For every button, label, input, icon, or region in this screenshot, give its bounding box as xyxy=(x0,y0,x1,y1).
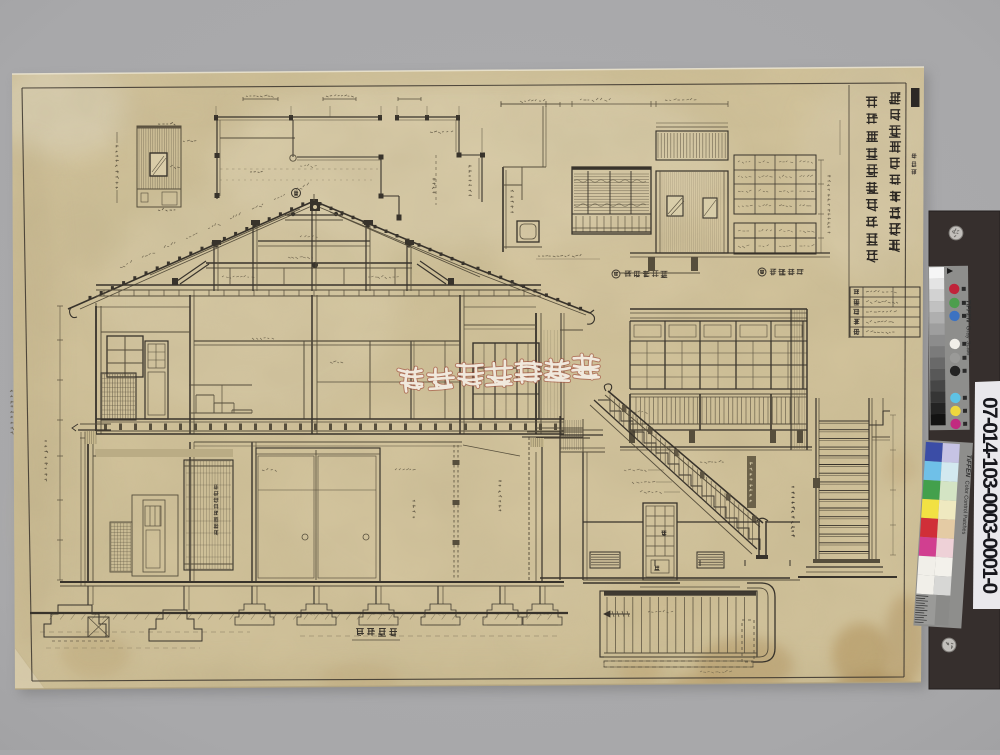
svg-text:TiFFEN: TiFFEN xyxy=(964,454,972,477)
svg-text:Gray Scale: Gray Scale xyxy=(965,326,971,356)
svg-text:TiFFEN: TiFFEN xyxy=(964,300,971,323)
svg-text:07-014-103-0003-0001-0: 07-014-103-0003-0001-0 xyxy=(978,397,1000,594)
